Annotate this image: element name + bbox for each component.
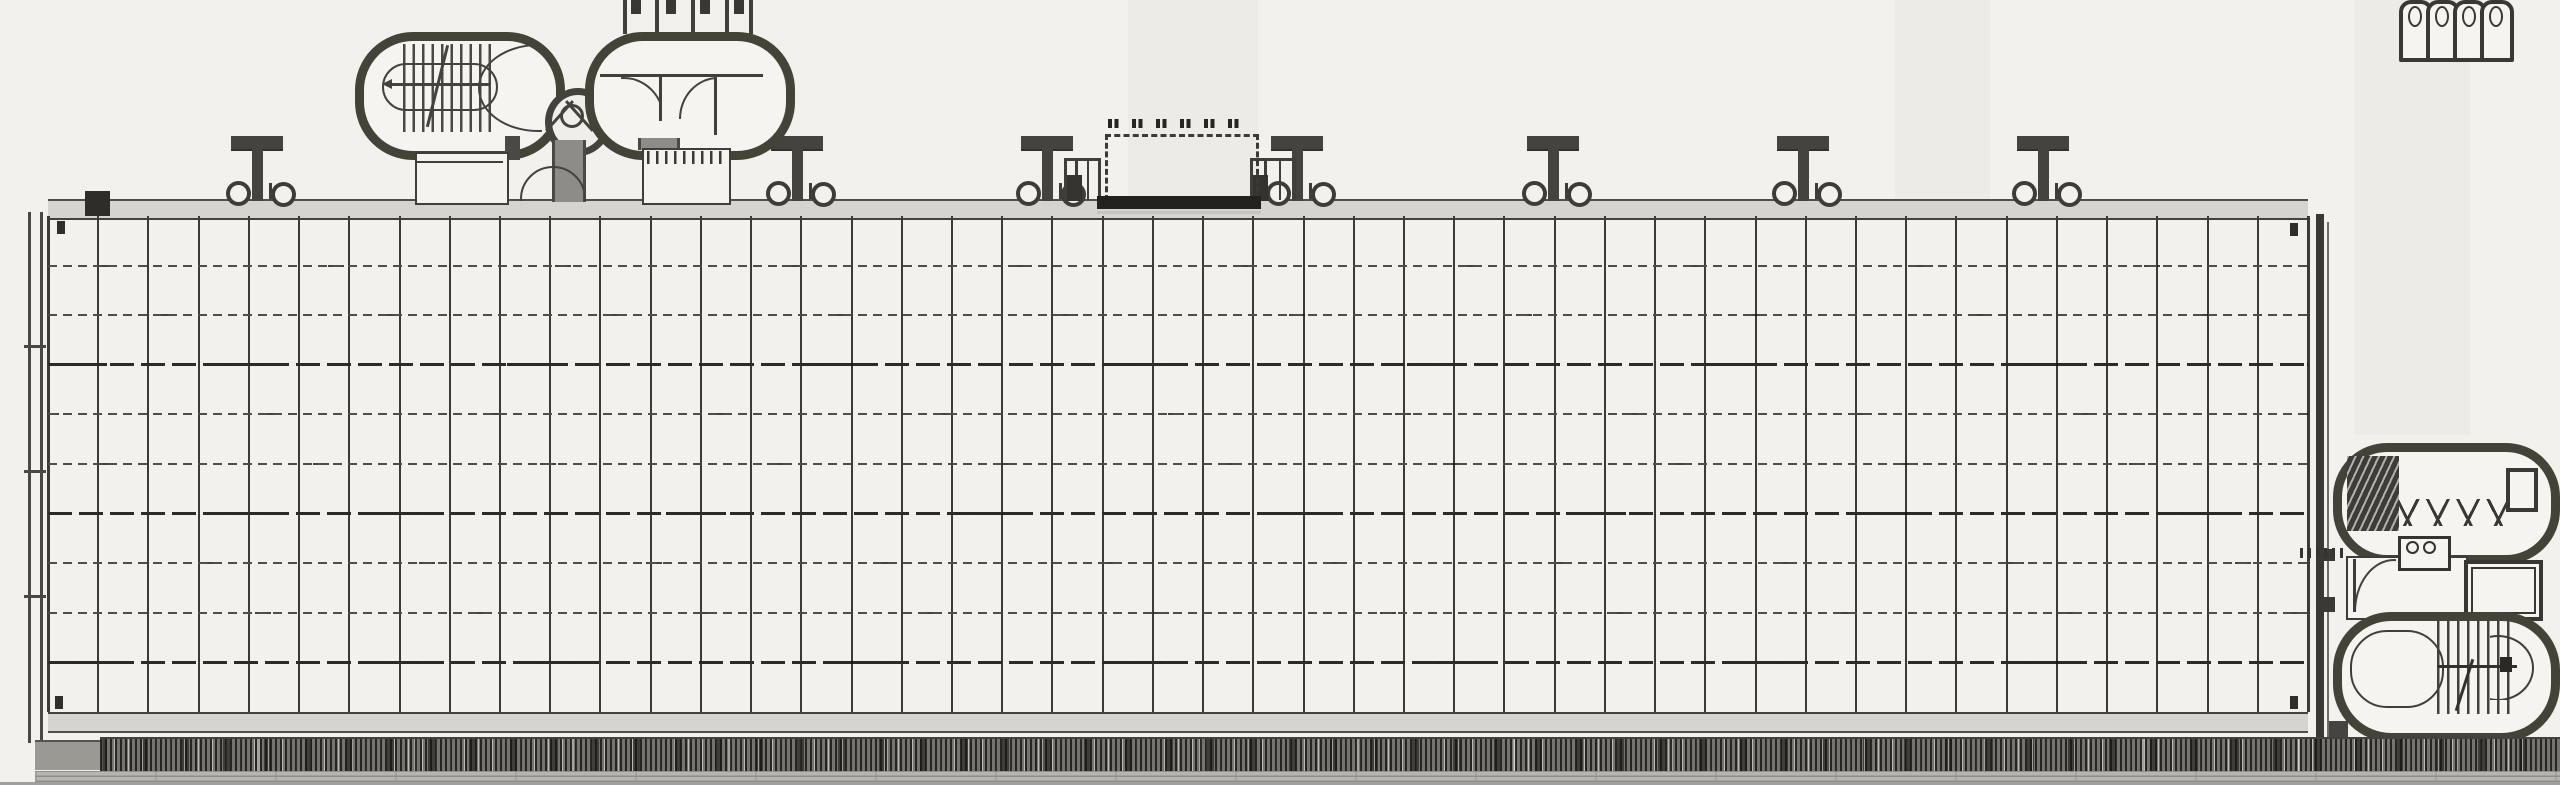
mast-eyebolt-left [766, 181, 791, 206]
washroom-fixture-mark [666, 0, 676, 14]
band-end-block [85, 191, 110, 216]
toilet-service-block [2347, 456, 2399, 531]
site-plan-canvas [0, 0, 2560, 785]
appliance-knob [2406, 541, 2419, 554]
mast-stem [1548, 149, 1559, 201]
grid-row-line [48, 562, 2308, 564]
paper-streak [2355, 0, 2470, 435]
left-wall-inner-line [40, 212, 43, 743]
canopy-tick-glyphs [1108, 119, 1250, 128]
railing-post [1293, 158, 1296, 200]
right-wall-outer-line [2327, 222, 2329, 743]
mast-eyebolt-right [2057, 182, 2082, 207]
toilet-bowl-oval [2408, 6, 2422, 27]
hatched-paving-strip [100, 737, 2560, 773]
mast-eyebolt-right [1311, 182, 1336, 207]
washroom-stall-post [749, 0, 753, 34]
toilet-bowl-oval [2435, 6, 2449, 27]
toilet-bowl-oval [2489, 6, 2503, 27]
mast-stem [1798, 149, 1809, 201]
service-appliance [2398, 536, 2451, 571]
mast-stem [1042, 149, 1053, 201]
annex-room [415, 152, 509, 205]
connector-tick-marks [2300, 548, 2344, 558]
grid-row-line [48, 265, 2308, 267]
mast-eyebolt-tail [1815, 183, 1818, 199]
mast-eyebolt-tail [1565, 183, 1568, 199]
railing-post [1098, 158, 1101, 200]
toilet-stall [2480, 0, 2514, 62]
grid-corner-mark [2290, 223, 2298, 236]
mast-eyebolt-tail [1309, 183, 1312, 199]
annex-room-wall-line [417, 161, 503, 163]
paving-strip-start [35, 740, 103, 770]
paper-streak [1895, 0, 1990, 215]
grid-corner-mark [2290, 696, 2298, 709]
stair-landing-arc [478, 44, 542, 132]
mast-eyebolt-tail [269, 183, 272, 199]
mast-eyebolt-right [1567, 182, 1592, 207]
stair-inner-ring-right [2350, 630, 2444, 708]
stair-direction-line [392, 83, 490, 86]
left-wall-outer-line [28, 212, 31, 743]
grid-row-line [48, 463, 2308, 465]
grid-row-line-heavy [48, 363, 2308, 366]
bottom-facade-band [48, 712, 2308, 733]
washroom-stall-post [725, 0, 729, 34]
mast-eyebolt-right [271, 182, 296, 207]
entrance-threshold-shadow [1097, 211, 1261, 214]
left-wall-joint-tick [24, 345, 46, 348]
mast-eyebolt-tail [2055, 183, 2058, 199]
right-wall [2316, 214, 2324, 743]
paving-edge-band [35, 771, 2560, 782]
washroom-fixture-mark [631, 0, 641, 14]
mast-eyebolt-left [2012, 181, 2037, 206]
mast-eyebolt-left [1522, 181, 1547, 206]
vestibule-door-arc [2356, 559, 2396, 613]
washroom-fixture-mark [700, 0, 710, 14]
washroom-stall-post [623, 0, 627, 34]
washroom-stall-post [691, 0, 695, 34]
grid-row-line-heavy [48, 512, 2308, 515]
entry-arc [520, 166, 587, 201]
mast-eyebolt-tail [809, 183, 812, 199]
grid-corner-mark [57, 221, 65, 234]
mast-stem [2038, 149, 2049, 201]
railing-post [1087, 158, 1090, 200]
grid-row-line-heavy [48, 661, 2308, 664]
toilet-fixture-box [2506, 468, 2538, 512]
pod-connector-bar [2318, 597, 2335, 612]
left-wall-joint-tick [24, 470, 46, 473]
stair-direction-arrow [382, 79, 392, 89]
stair-end-arc-right [2490, 635, 2534, 700]
mast-eyebolt-right [1817, 182, 1842, 207]
mast-eyebolt-left [226, 181, 251, 206]
entrance-canopy-dashed-box [1105, 134, 1259, 201]
appliance-knob [2423, 541, 2436, 554]
grid-corner-mark [55, 696, 63, 709]
grid-row-line [48, 612, 2308, 614]
grid-row-line [48, 314, 2308, 316]
mast-stem [792, 149, 803, 201]
railing-equipment-blob [1067, 175, 1082, 201]
toilet-stall-zigzag [2399, 499, 2507, 526]
toilet-bowl-oval [2462, 6, 2476, 27]
washroom-fixture-mark [734, 0, 744, 14]
mast-stem [252, 149, 263, 201]
washroom-door-arc [679, 77, 717, 119]
mast-eyebolt-right [811, 182, 836, 207]
mast-eyebolt-left [1772, 181, 1797, 206]
washroom-stall-post [655, 0, 659, 34]
mast-eyebolt-tail [1059, 183, 1062, 199]
grid-row-line [48, 413, 2308, 415]
mast-eyebolt-left [1016, 181, 1041, 206]
railing-post [1279, 158, 1282, 200]
left-wall-joint-tick [24, 595, 46, 598]
washroom-door-arc [621, 77, 661, 121]
railing-top-rail [1064, 158, 1100, 161]
spiral-stair-core [560, 104, 584, 128]
entrance-threshold-bar [1097, 196, 1261, 209]
annex-rack-ticks [647, 151, 723, 164]
